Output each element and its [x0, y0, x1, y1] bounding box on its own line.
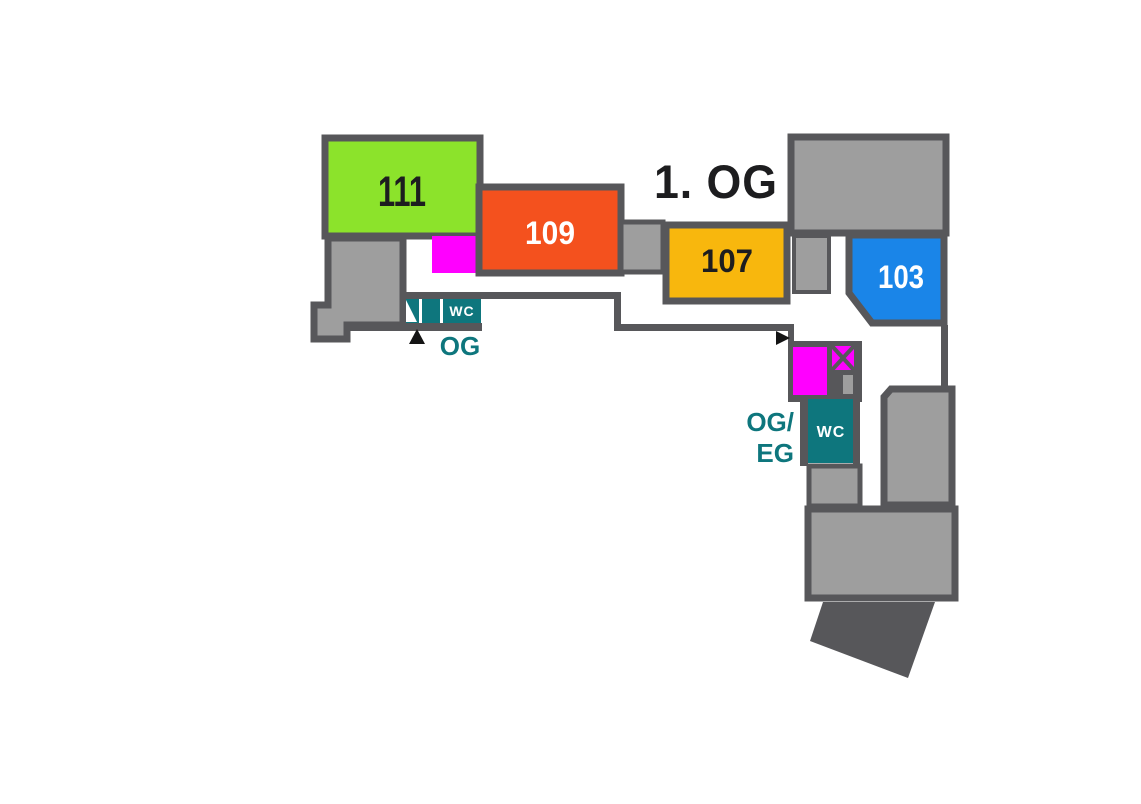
wall-corridor-bottom-left	[344, 323, 482, 331]
wall-corridor-top-left	[404, 292, 621, 299]
wc-right-label: WC	[817, 424, 846, 441]
wall-corridor-bottom-right	[614, 324, 794, 331]
stair-block-left	[422, 299, 440, 323]
room-111-label: 111	[378, 168, 426, 216]
structure-small-right-block	[794, 236, 829, 292]
elevator-icon	[832, 346, 854, 370]
structure-top-right-block	[791, 137, 946, 233]
structure-bottom-block	[808, 509, 955, 598]
stairwell-right-block	[793, 347, 827, 395]
floor-plan-canvas: 111 WC OG 109 107 1. OG 103	[0, 0, 1141, 804]
room-103-label: 103	[878, 259, 924, 295]
wall-wc-right-right	[853, 402, 860, 468]
entrance-arrow-up-icon	[409, 329, 425, 344]
wall-wc-right-left	[800, 396, 808, 466]
room-107-label: 107	[701, 243, 753, 279]
stairwell-left-block	[432, 236, 478, 273]
annex-dark-block	[810, 602, 935, 678]
wc-left-label: WC	[449, 303, 474, 319]
structure-mid-block	[621, 222, 663, 272]
floor-title: 1. OG	[654, 155, 778, 208]
stair-right-label-line2: EG	[756, 438, 794, 468]
structure-below-wc-block	[809, 466, 860, 506]
stair-left-label: OG	[440, 331, 480, 361]
room-109-label: 109	[525, 215, 575, 251]
stair-right-label-line1: OG/	[746, 407, 794, 437]
structure-tall-right-block	[884, 389, 952, 505]
core-gray-cell	[843, 375, 853, 394]
entrance-arrow-right-icon	[776, 331, 790, 345]
wall-right-vertical	[941, 325, 948, 391]
